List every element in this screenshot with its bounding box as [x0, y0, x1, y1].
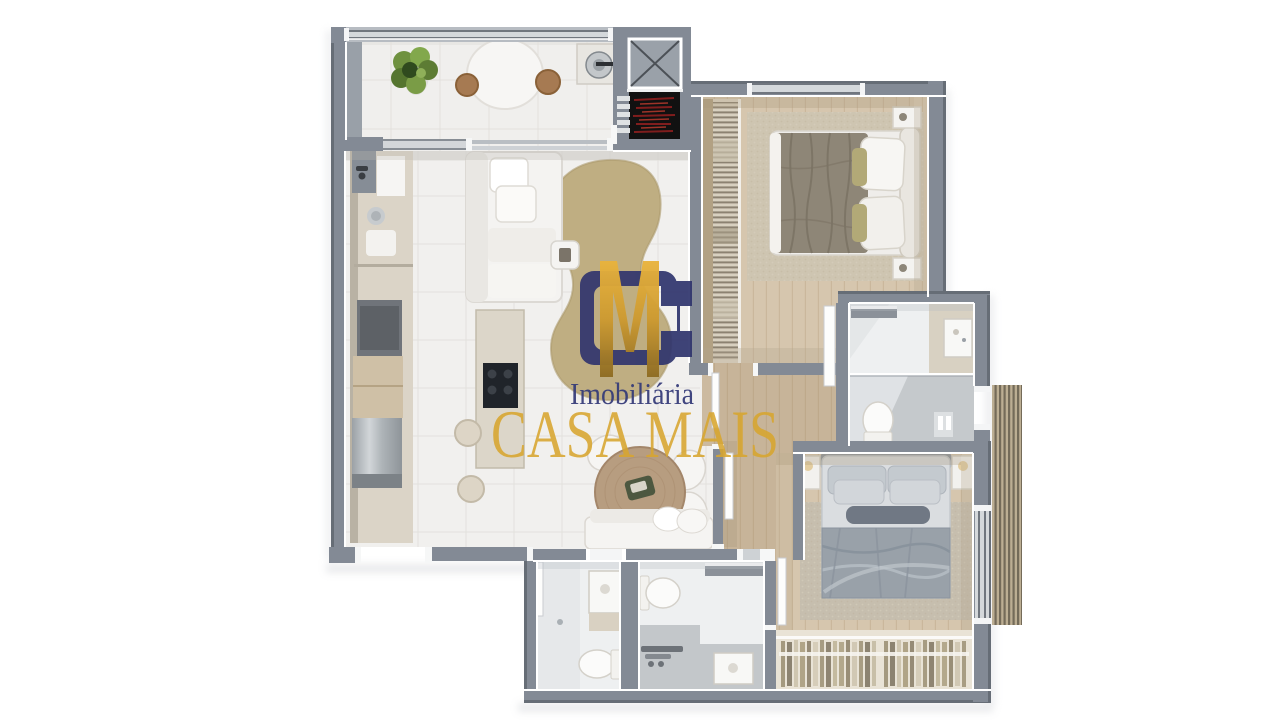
svg-text:CASA MAIS: CASA MAIS: [491, 396, 779, 472]
